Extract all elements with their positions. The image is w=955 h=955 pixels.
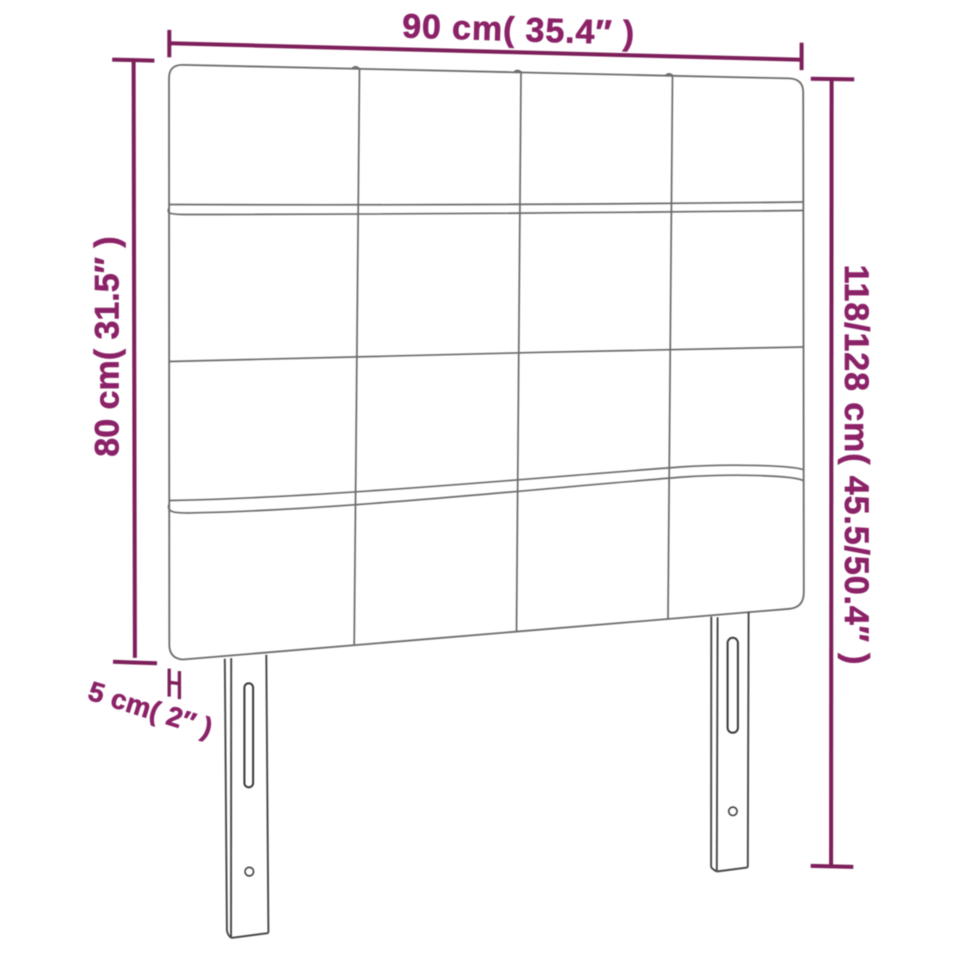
svg-text:118/128 cm( 45.5/50.4″ ): 118/128 cm( 45.5/50.4″ ): [837, 265, 875, 666]
svg-text:5 cm( 2″ ): 5 cm( 2″ ): [85, 675, 217, 743]
svg-text:80 cm( 31.5″ ): 80 cm( 31.5″ ): [89, 236, 127, 456]
svg-text:90 cm( 35.4″ ): 90 cm( 35.4″ ): [402, 7, 636, 52]
